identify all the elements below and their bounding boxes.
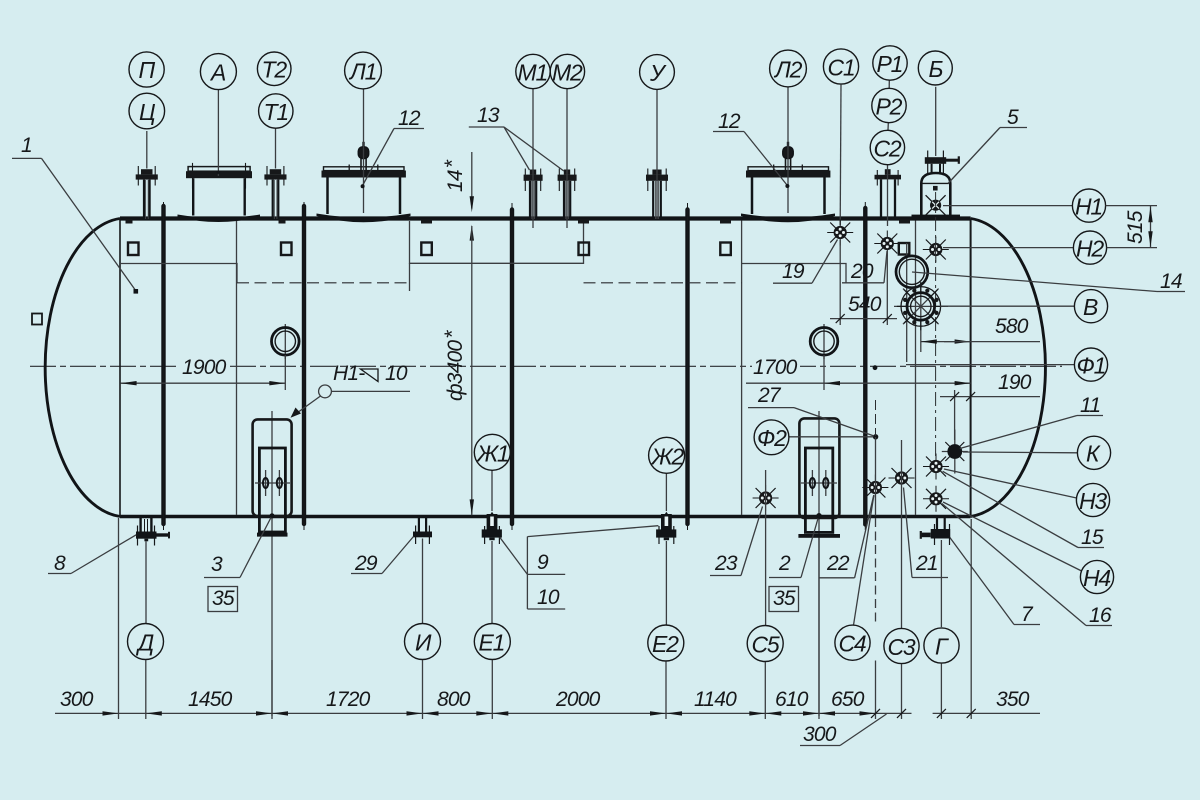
svg-text:С3: С3 [888,634,916,660]
svg-text:Ф2: Ф2 [757,425,787,451]
svg-text:1720: 1720 [326,688,371,711]
svg-text:350: 350 [996,688,1030,711]
svg-text:С1: С1 [828,55,855,81]
svg-text:19: 19 [782,260,805,283]
svg-text:14: 14 [1160,270,1182,293]
svg-text:Н4: Н4 [1083,565,1110,591]
svg-text:580: 580 [995,315,1029,338]
svg-text:23: 23 [714,552,738,575]
svg-text:Ж1: Ж1 [476,441,508,467]
svg-text:2000: 2000 [555,688,601,711]
svg-text:8: 8 [54,552,66,575]
svg-text:650: 650 [831,688,865,711]
svg-text:35: 35 [212,587,235,610]
svg-text:27: 27 [757,384,782,407]
svg-text:35: 35 [773,587,796,610]
svg-text:16: 16 [1089,604,1112,627]
svg-text:П: П [139,57,156,83]
svg-text:9: 9 [537,551,549,574]
svg-text:Ж2: Ж2 [651,444,685,470]
svg-text:Б: Б [929,56,944,82]
svg-text:Т2: Т2 [262,57,288,83]
svg-text:Н1: Н1 [1075,194,1102,220]
svg-text:300: 300 [60,688,94,711]
svg-text:И: И [415,630,432,656]
svg-text:1700: 1700 [753,356,798,379]
svg-text:Л2: Л2 [773,57,803,83]
svg-text:12: 12 [398,107,421,130]
svg-text:21: 21 [915,552,938,575]
svg-text:14*: 14* [441,159,467,192]
svg-text:190: 190 [998,371,1032,394]
svg-text:2: 2 [778,552,791,575]
svg-text:С5: С5 [752,632,780,658]
svg-text:610: 610 [775,688,809,711]
svg-text:Р1: Р1 [877,51,903,77]
svg-text:29: 29 [354,552,378,575]
svg-text:1: 1 [21,134,32,157]
svg-text:Н2: Н2 [1076,236,1104,262]
svg-text:5: 5 [1007,106,1019,129]
svg-text:Ц: Ц [139,99,156,125]
svg-text:1900: 1900 [182,356,227,379]
svg-text:540: 540 [848,293,882,316]
svg-text:Н1-: Н1- [333,362,365,385]
svg-text:11: 11 [1080,394,1100,417]
svg-text:15: 15 [1081,526,1104,549]
svg-text:Л1: Л1 [348,59,376,85]
svg-text:Р2: Р2 [876,94,903,120]
svg-text:800: 800 [437,688,471,711]
svg-text:Д: Д [135,630,154,656]
svg-text:3: 3 [211,553,223,576]
svg-text:515: 515 [1124,210,1147,244]
svg-text:22: 22 [826,552,850,575]
svg-text:Н3: Н3 [1079,488,1107,514]
svg-text:С2: С2 [874,136,902,162]
svg-text:Е2: Е2 [652,631,679,657]
svg-text:300: 300 [803,723,837,746]
svg-text:С4: С4 [839,631,866,657]
svg-text:10: 10 [385,362,408,385]
svg-text:Т1: Т1 [264,99,288,125]
svg-text:1140: 1140 [694,688,737,711]
svg-text:М2: М2 [552,60,583,86]
svg-text:12: 12 [718,110,741,133]
svg-text:М1: М1 [518,60,548,86]
svg-text:13: 13 [477,104,500,127]
svg-text:20: 20 [850,260,874,283]
svg-text:10: 10 [537,586,560,609]
svg-text:Ф1: Ф1 [1077,353,1106,379]
svg-text:А: А [209,60,226,86]
svg-text:1450: 1450 [188,688,233,711]
svg-text:Е1: Е1 [479,630,505,656]
svg-text:В: В [1083,294,1098,320]
